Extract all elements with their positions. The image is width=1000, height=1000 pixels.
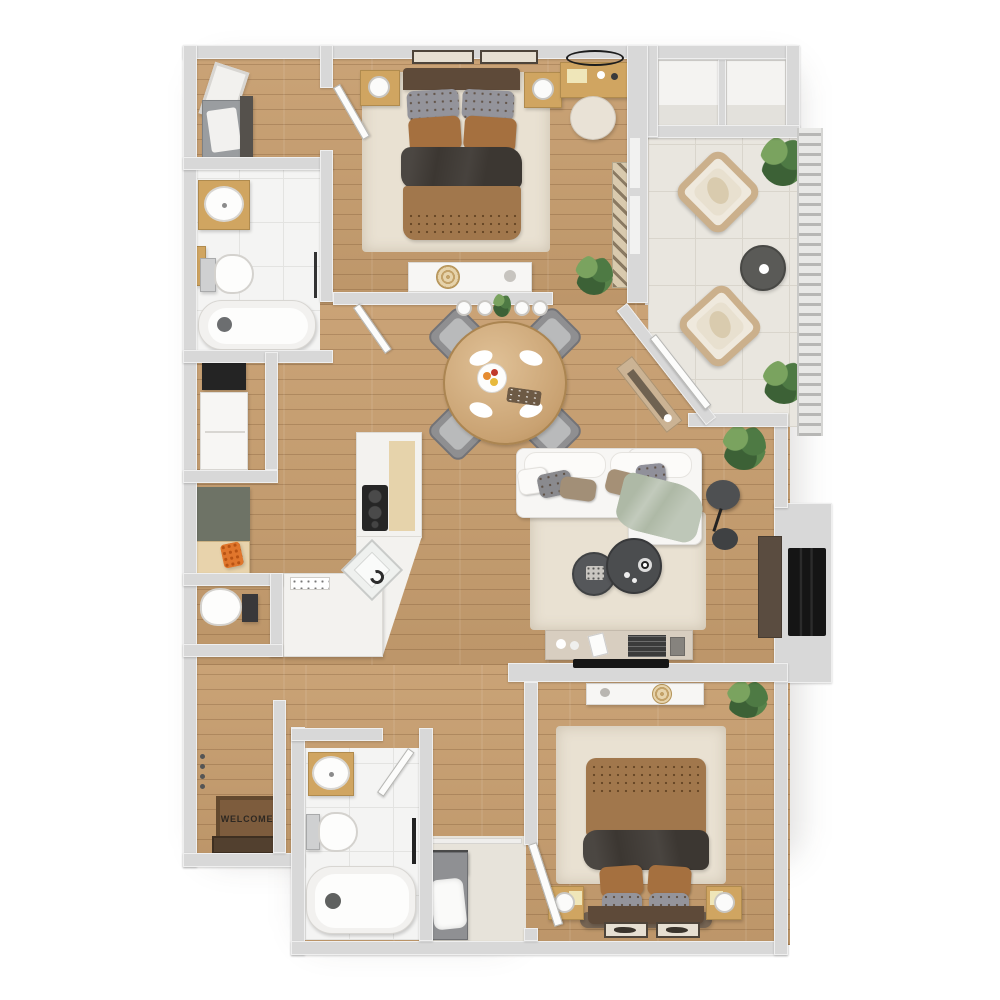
plate-3 bbox=[467, 399, 494, 420]
bedroom2-plant bbox=[726, 680, 768, 718]
wall-bedroom1-left-a bbox=[320, 45, 333, 88]
pendant-light-3 bbox=[514, 300, 530, 316]
pendant-light-4 bbox=[532, 300, 548, 316]
coffee-table-large bbox=[606, 538, 662, 594]
closet-linens bbox=[206, 107, 242, 153]
bed1-wall-art-left bbox=[412, 50, 474, 64]
wall-balcony-storage-right bbox=[786, 45, 800, 135]
kitchen-counter-north bbox=[356, 432, 422, 538]
fruit-bowl bbox=[477, 363, 507, 393]
balcony-cabinet-left bbox=[658, 60, 720, 126]
bed1-dark-blanket bbox=[401, 147, 522, 189]
fireplace-firebox bbox=[788, 548, 826, 636]
pendant-plant-sprig bbox=[493, 293, 511, 317]
bath1-tub-drain bbox=[217, 317, 232, 332]
welcome-mat-label: WELCOME bbox=[221, 814, 274, 824]
coat-hook-1 bbox=[200, 754, 205, 759]
wall-powder-bottom bbox=[183, 644, 283, 657]
console-bowl bbox=[570, 641, 579, 650]
bath2-toilet bbox=[318, 812, 358, 852]
console-magazine bbox=[588, 632, 609, 657]
wall-powder-top bbox=[183, 573, 283, 586]
bed1-wall-art-right bbox=[480, 50, 538, 64]
bed1-duvet bbox=[403, 186, 521, 240]
coffee-machine bbox=[202, 362, 246, 390]
bed2-duvet-stitching bbox=[590, 763, 702, 795]
bed1-lamp-right bbox=[532, 78, 554, 100]
kitchen-cabinet-face bbox=[389, 441, 415, 531]
desk-jar bbox=[611, 73, 618, 80]
serving-board bbox=[506, 387, 542, 407]
bed2-wall-art-left bbox=[604, 922, 648, 938]
desk-notepad bbox=[567, 69, 587, 83]
coat-hook-2 bbox=[200, 764, 205, 769]
balcony-railing bbox=[797, 128, 823, 436]
wall-bedroom2-left-a bbox=[524, 682, 538, 845]
coffee-table-cup2 bbox=[632, 578, 637, 583]
dresser2-woven-decor bbox=[652, 684, 672, 704]
console-receiver bbox=[628, 635, 666, 657]
fruit-yellow bbox=[490, 378, 498, 386]
balcony-cabinet-right bbox=[726, 60, 786, 126]
fireplace-hearth-panel bbox=[758, 536, 782, 638]
wall-bedroom2-left-b bbox=[524, 928, 538, 941]
fruit-red bbox=[491, 369, 498, 376]
wall-balcony-storage-bottom bbox=[645, 125, 800, 138]
floor-lamp-shade bbox=[706, 480, 740, 510]
wall-bathroom1-bottom bbox=[183, 350, 333, 363]
bedroom1-plant bbox=[575, 255, 613, 295]
window-bedroom1-a bbox=[630, 138, 640, 188]
pendant-light-2 bbox=[477, 300, 493, 316]
dresser1-vase bbox=[504, 270, 516, 282]
bath1-toilet bbox=[214, 254, 254, 294]
floor-plan: WELCOME bbox=[0, 0, 1000, 1000]
powder-fixture bbox=[242, 594, 258, 622]
refrigerator bbox=[200, 392, 248, 470]
balcony-table-center bbox=[759, 264, 769, 274]
bath2-sink bbox=[312, 756, 350, 790]
coat-hook-3 bbox=[200, 774, 205, 779]
laundry-shelf-rod bbox=[430, 838, 522, 844]
fridge-split bbox=[205, 431, 245, 433]
bath1-bathtub bbox=[198, 300, 316, 350]
bed1-lamp-left bbox=[368, 76, 390, 98]
bath1-towel-bar bbox=[314, 252, 317, 298]
tv bbox=[573, 659, 669, 668]
entry-door bbox=[212, 836, 280, 854]
dresser1-woven-decor bbox=[436, 265, 460, 289]
window-bedroom1-b bbox=[630, 196, 640, 254]
bed1-duvet-stitching bbox=[407, 212, 517, 236]
laundry-hamper bbox=[428, 852, 468, 940]
console-mug bbox=[556, 639, 566, 649]
wall-bathroom2-top bbox=[291, 728, 383, 741]
powder-toilet bbox=[200, 588, 242, 626]
wall-bathroom2-right bbox=[419, 728, 433, 941]
bath2-towel-bar bbox=[412, 818, 416, 864]
coat-hook-4 bbox=[200, 784, 205, 789]
vanity-desk bbox=[560, 62, 632, 98]
coffee-table-plate bbox=[638, 558, 652, 572]
wall-bedroom2-right bbox=[774, 682, 788, 955]
laundry-pillow bbox=[429, 877, 467, 930]
dining-table bbox=[443, 321, 567, 445]
vanity-round-mirror bbox=[566, 50, 624, 66]
bath1-drain bbox=[222, 203, 227, 208]
closet-board-bag bbox=[240, 96, 253, 158]
cooktop bbox=[362, 485, 388, 531]
wall-bedroom1-left-b bbox=[320, 150, 333, 302]
wall-bathblock-left bbox=[291, 727, 305, 955]
tv-console bbox=[545, 630, 693, 660]
coffee-table-book bbox=[586, 566, 604, 580]
living-plant bbox=[722, 424, 766, 470]
balcony-table bbox=[740, 245, 786, 291]
dresser2-vase bbox=[600, 688, 610, 697]
wall-fridge-nook-right bbox=[265, 352, 278, 470]
bed2-lamp-right bbox=[714, 892, 735, 913]
vanity-stool bbox=[570, 96, 616, 140]
wall-living-right bbox=[774, 413, 788, 508]
coffee-table-cup1 bbox=[624, 572, 630, 578]
pendant-light-1 bbox=[456, 300, 472, 316]
bath2-bathtub bbox=[306, 866, 416, 934]
floor-lamp-base bbox=[712, 528, 738, 550]
kitchen-tray bbox=[290, 577, 330, 590]
wall-closet-bottom bbox=[183, 157, 333, 170]
plate-2 bbox=[517, 347, 544, 368]
bath1-sink bbox=[204, 186, 244, 222]
bath2-drain bbox=[329, 772, 334, 777]
bed2-dark-blanket bbox=[583, 830, 709, 870]
wall-entry-bottom bbox=[183, 853, 305, 867]
wall-fridge-nook-bottom bbox=[183, 470, 278, 483]
olive-cabinet bbox=[196, 487, 250, 541]
desk-cup bbox=[597, 71, 605, 79]
console-speaker bbox=[670, 637, 685, 656]
cabinet-divider-wall bbox=[718, 59, 726, 127]
wall-entry-right bbox=[273, 700, 286, 853]
bed2-wall-art-right bbox=[656, 922, 700, 938]
bed2-duvet bbox=[586, 758, 706, 836]
bath2-tub-drain bbox=[325, 893, 341, 909]
bed1-headboard bbox=[403, 68, 520, 90]
wall-outer-bottom bbox=[291, 941, 788, 955]
